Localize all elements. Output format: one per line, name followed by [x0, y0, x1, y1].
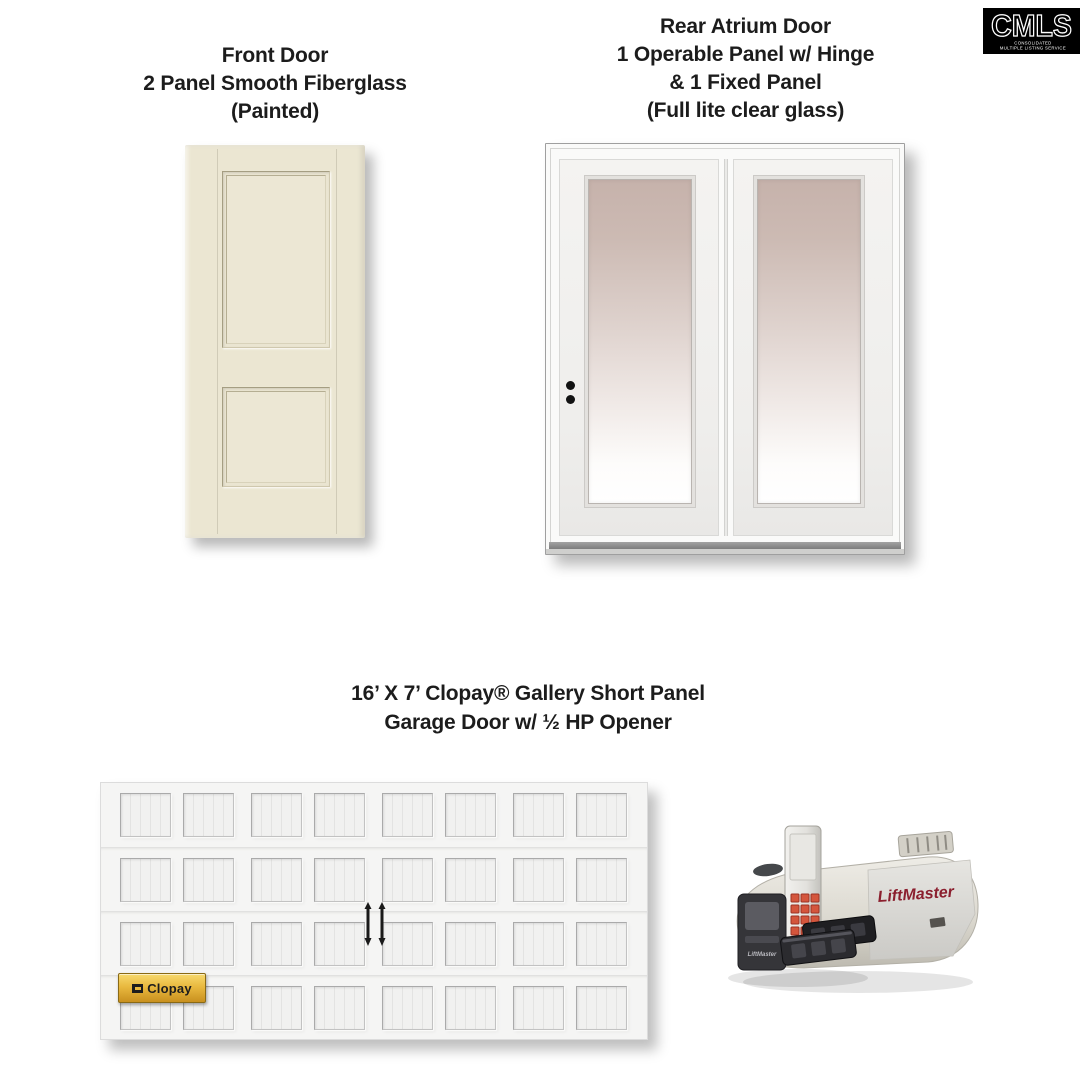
garage-panel: [513, 922, 564, 966]
garage-panel: [314, 793, 365, 837]
garage-panel: [120, 858, 171, 902]
lock-bore-hole: [566, 381, 575, 390]
atrium-door-title-line3: & 1 Fixed Panel: [563, 69, 928, 97]
wall-control: LiftMaster: [738, 894, 786, 970]
atrium-center-mullion: [724, 159, 728, 536]
front-door-top-panel: [222, 171, 330, 348]
wall-control-brand-text: LiftMaster: [748, 952, 777, 958]
front-door-bottom-panel: [222, 387, 330, 487]
garage-panel: [314, 986, 365, 1030]
garage-opener-image: LiftMaster: [698, 810, 988, 1015]
atrium-glass-right: [757, 179, 861, 504]
clopay-logo-icon: [132, 984, 143, 993]
opener-shadow: [728, 969, 868, 987]
garage-panel: [576, 922, 627, 966]
panel-bevel: [226, 175, 326, 344]
garage-panel: [120, 922, 171, 966]
garage-panel: [445, 858, 496, 902]
garage-panel: [382, 858, 433, 902]
atrium-door-title-line2: 1 Operable Panel w/ Hinge: [563, 41, 928, 69]
garage-panel: [120, 793, 171, 837]
garage-panel: [576, 858, 627, 902]
garage-panel: [576, 986, 627, 1030]
garage-panel: [183, 922, 234, 966]
cmls-logo-letters: CMLS: [987, 9, 1076, 42]
clopay-badge: Clopay: [118, 973, 206, 1003]
garage-panel: [183, 858, 234, 902]
garage-panel: [183, 793, 234, 837]
garage-panel: [251, 922, 302, 966]
garage-title-line1: 16’ X 7’ Clopay® Gallery Short Panel: [262, 679, 794, 708]
cmls-logo-subtext-line2: MULTIPLE LISTING SERVICE: [992, 47, 1074, 51]
garage-panel: [382, 922, 433, 966]
garage-panel: [513, 986, 564, 1030]
front-door-image: [185, 145, 365, 538]
side-panel: [868, 860, 975, 960]
garage-panel: [382, 986, 433, 1030]
garage-lift-handles-icon: [362, 901, 388, 947]
garage-panel: [251, 986, 302, 1030]
front-door-title-line3: (Painted): [120, 98, 430, 126]
garage-panel: [513, 858, 564, 902]
listing-photo-page: CMLS CONSOLIDATED MULTIPLE LISTING SERVI…: [0, 0, 1080, 1080]
lock-bore-hole: [566, 395, 575, 404]
garage-panel: [576, 793, 627, 837]
door-sill: [549, 542, 901, 549]
light-lens: [752, 862, 783, 878]
garage-panel: [251, 793, 302, 837]
garage-panel: [513, 793, 564, 837]
front-door-title-line2: 2 Panel Smooth Fiberglass: [120, 70, 430, 98]
atrium-glass-left: [588, 179, 692, 504]
door-sill-shadow: [546, 549, 904, 554]
garage-title-line2: Garage Door w/ ½ HP Opener: [262, 708, 794, 737]
garage-panel: [445, 793, 496, 837]
front-door-stile-line: [336, 149, 337, 534]
clopay-badge-label: Clopay: [147, 981, 192, 996]
panel-bevel: [226, 391, 326, 483]
front-door-title: Front Door 2 Panel Smooth Fiberglass (Pa…: [120, 42, 430, 126]
atrium-door-image: [545, 143, 905, 555]
garage-panel: [251, 858, 302, 902]
front-door-stile-line: [217, 149, 218, 534]
vent-slots-icon: [898, 831, 954, 857]
garage-title: 16’ X 7’ Clopay® Gallery Short Panel Gar…: [262, 679, 794, 737]
atrium-door-title-line1: Rear Atrium Door: [563, 13, 928, 41]
garage-panel: [445, 986, 496, 1030]
atrium-door-title-line4: (Full lite clear glass): [563, 97, 928, 125]
atrium-door-title: Rear Atrium Door 1 Operable Panel w/ Hin…: [563, 13, 928, 125]
garage-panel: [314, 858, 365, 902]
garage-panel: [314, 922, 365, 966]
garage-door-image: Clopay: [100, 782, 648, 1040]
garage-panel: [382, 793, 433, 837]
front-door-title-line1: Front Door: [120, 42, 430, 70]
garage-panel: [445, 922, 496, 966]
garage-panel-row: [101, 783, 647, 847]
cmls-logo: CMLS CONSOLIDATED MULTIPLE LISTING SERVI…: [983, 8, 1080, 54]
